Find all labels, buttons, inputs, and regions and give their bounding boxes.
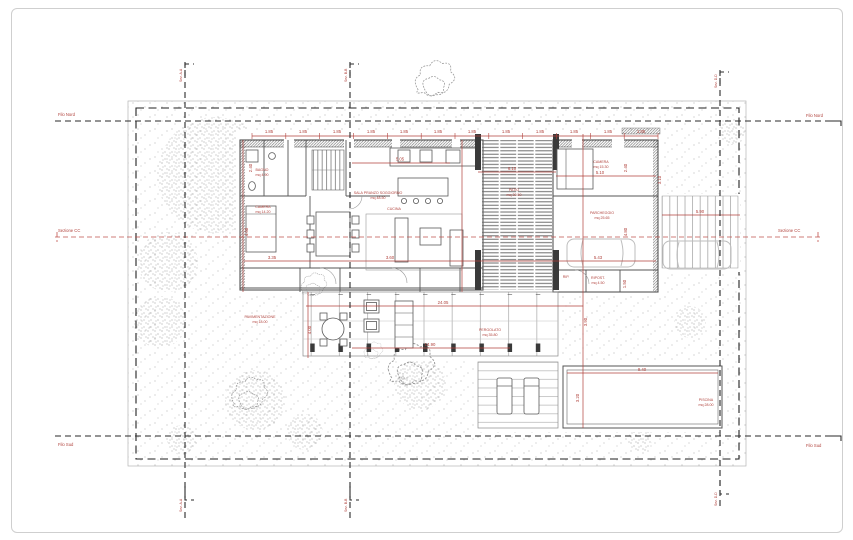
dim-module: 1.85 (400, 129, 409, 134)
kitchen-island (398, 178, 448, 196)
room-label-pergolato: PERGOLATO (479, 328, 501, 332)
east-wall (653, 140, 658, 292)
dim-kitchen: 5.05 (396, 157, 405, 162)
floor-plan-drawing: 1.85 1.85 1.85 1.85 1.85 1.85 1.85 1.85 … (0, 0, 853, 540)
dim-right-v3: 3.10 (657, 175, 662, 184)
swimming-pool (563, 366, 722, 428)
label-sez-dd-bottom: Sez. D-D (714, 492, 718, 506)
room-label-cucina: CUCINA (387, 207, 401, 211)
room-label-parcheggio: PARCHEGGIO (590, 211, 614, 215)
room-label-camera1: CAMERA (255, 205, 271, 209)
svg-text:mq 4.90: mq 4.90 (256, 173, 269, 177)
dim-terrace: 24.05 (438, 300, 449, 305)
dim-module: 1.85 (434, 129, 443, 134)
label-filo-nord-right: Filo Nord (806, 113, 824, 118)
dim-module: 1.85 (637, 129, 646, 134)
dim-camera2: 5.10 (596, 170, 605, 175)
room-label-camera2: CAMERA (593, 160, 609, 164)
dim-module: 1.85 (468, 129, 477, 134)
dim-right-v2: 4.80 (623, 227, 628, 236)
label-sez-dd-top: Sez. D-D (714, 74, 718, 88)
label-filo-nord-left: Filo Nord (58, 112, 76, 117)
room-label-soggiorno: SALA PRANZO SOGGIORNO (354, 191, 403, 195)
svg-text:mq 35.80: mq 35.80 (483, 333, 498, 337)
dim-dining: 3.35 (268, 255, 277, 260)
label-sez-bb-top: Sez. B-B (344, 68, 348, 82)
dim-module: 1.85 (502, 129, 511, 134)
svg-text:mq 4.50: mq 4.50 (592, 281, 605, 285)
label-sezione-cc-right: Sezione CC (778, 228, 800, 233)
label-sez-aa-top: Sez. A-A (179, 68, 183, 82)
dim-module: 1.85 (299, 129, 308, 134)
dim-right-v1: 2.40 (623, 163, 628, 172)
pool-deck (478, 362, 558, 428)
dim-patio-depth: 3.90 (583, 317, 588, 326)
room-label-piscina: PISCINA (699, 398, 714, 402)
label-filo-sud-left: Filo Sud (58, 442, 74, 447)
svg-text:mq 28.00: mq 28.00 (699, 403, 714, 407)
dim-pool: 9.40 (638, 367, 647, 372)
svg-text:mq 14.20: mq 14.20 (256, 210, 271, 214)
dim-left-v2: 4.60 (244, 227, 249, 236)
label-sez-bb-bottom: Sez. B-B (344, 498, 348, 512)
dim-driveway: 5.90 (696, 209, 705, 214)
svg-text:mq 48.50: mq 48.50 (371, 196, 386, 200)
dim-strip: 1.50 (622, 279, 627, 288)
label-sez-aa-bottom: Sez. A-A (179, 498, 183, 512)
dim-module: 1.85 (570, 129, 579, 134)
west-wall (240, 140, 245, 290)
dim-terrace-inner: 14.90 (425, 342, 436, 347)
driveway (662, 196, 738, 269)
dim-module: 1.85 (265, 129, 274, 134)
dim-left-v1: 2.40 (248, 163, 253, 172)
dim-garage: 5.43 (594, 255, 603, 260)
dim-module: 1.85 (367, 129, 376, 134)
north-wall (240, 140, 478, 147)
dim-living: 3.60 (386, 255, 395, 260)
dim-module: 1.85 (333, 129, 342, 134)
north-wall-right (553, 140, 658, 147)
room-label-pavimentazione: PAVIMENTAZIONE (245, 315, 277, 319)
sun-lounger (524, 378, 539, 414)
room-label-rip2: RIPOST. (591, 276, 605, 280)
sun-lounger (497, 378, 512, 414)
bed-right (557, 149, 593, 189)
room-label-patio: PATIO (509, 188, 519, 192)
dim-pool-depth: 3.20 (575, 393, 580, 402)
svg-text:mq 15.30: mq 15.30 (594, 165, 609, 169)
room-label-rip1: RIP. (563, 275, 570, 279)
label-filo-sud-right: Filo Sud (806, 443, 822, 448)
svg-text:mq 30.50: mq 30.50 (507, 193, 522, 197)
dim-module: 1.85 (604, 129, 613, 134)
staircase (312, 150, 344, 190)
label-sezione-cc-left: Sezione CC (58, 228, 80, 233)
svg-text:mq 18.00: mq 18.00 (253, 320, 268, 324)
svg-text:mq 25.65: mq 25.65 (595, 216, 610, 220)
dim-patio: 6.10 (508, 166, 517, 171)
dim-terrace-depth: 4.00 (307, 325, 312, 334)
central-patio (475, 134, 559, 290)
plan-canvas: 1.85 1.85 1.85 1.85 1.85 1.85 1.85 1.85 … (0, 0, 853, 540)
room-label-bagno: BAGNO (256, 168, 269, 172)
dim-module: 1.85 (536, 129, 545, 134)
